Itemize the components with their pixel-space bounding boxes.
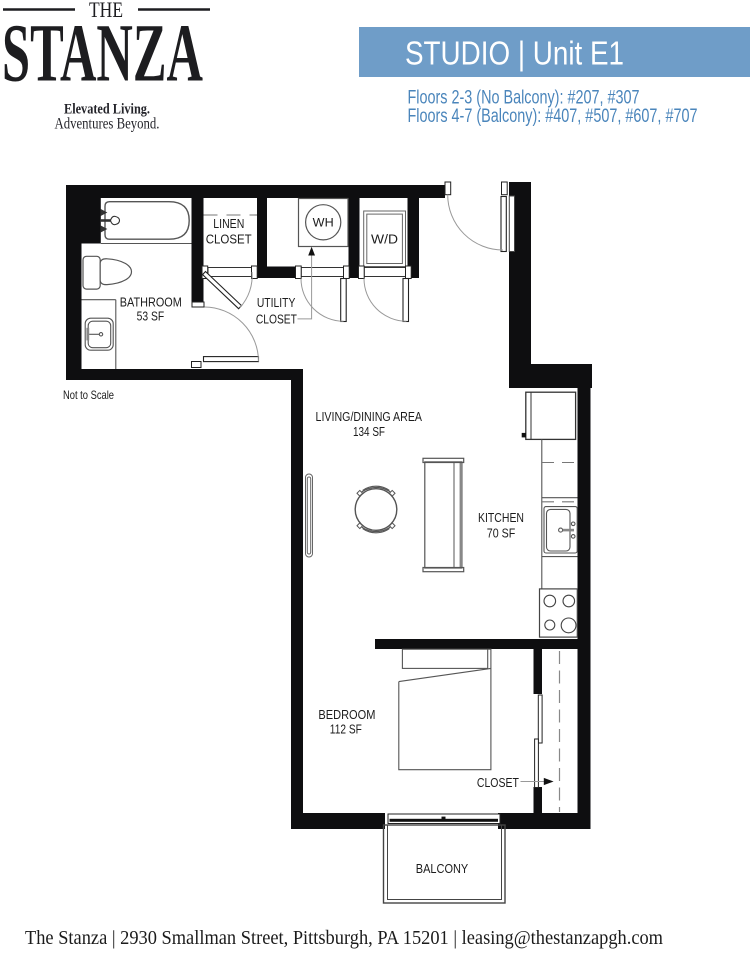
svg-text:CLOSET: CLOSET (477, 775, 519, 790)
svg-text:W/D: W/D (371, 231, 398, 246)
svg-text:LIVING/DINING AREA: LIVING/DINING AREA (316, 409, 423, 424)
svg-text:STUDIO | Unit E1: STUDIO | Unit E1 (405, 35, 624, 72)
svg-text:Floors 4-7 (Balcony): #407, #5: Floors 4-7 (Balcony): #407, #507, #607, … (408, 106, 698, 127)
svg-text:CLOSET: CLOSET (206, 231, 252, 246)
svg-text:WH: WH (313, 218, 334, 230)
svg-text:134 SF: 134 SF (353, 424, 385, 439)
svg-text:BEDROOM: BEDROOM (318, 707, 375, 722)
svg-text:CLOSET: CLOSET (256, 312, 297, 327)
svg-text:STANZA: STANZA (2, 7, 203, 99)
svg-text:LINEN: LINEN (213, 216, 244, 231)
svg-text:112 SF: 112 SF (330, 721, 362, 736)
svg-text:53 SF: 53 SF (137, 309, 165, 324)
svg-text:Adventures Beyond.: Adventures Beyond. (55, 116, 160, 133)
svg-text:KITCHEN: KITCHEN (478, 510, 524, 525)
svg-text:Not to Scale: Not to Scale (63, 388, 114, 402)
svg-text:BATHROOM: BATHROOM (120, 295, 182, 310)
svg-text:70 SF: 70 SF (487, 526, 516, 541)
svg-text:The Stanza | 2930 Smallman Str: The Stanza | 2930 Smallman Street, Pitts… (25, 927, 663, 949)
svg-text:UTILITY: UTILITY (257, 295, 296, 310)
svg-text:BALCONY: BALCONY (416, 861, 469, 876)
